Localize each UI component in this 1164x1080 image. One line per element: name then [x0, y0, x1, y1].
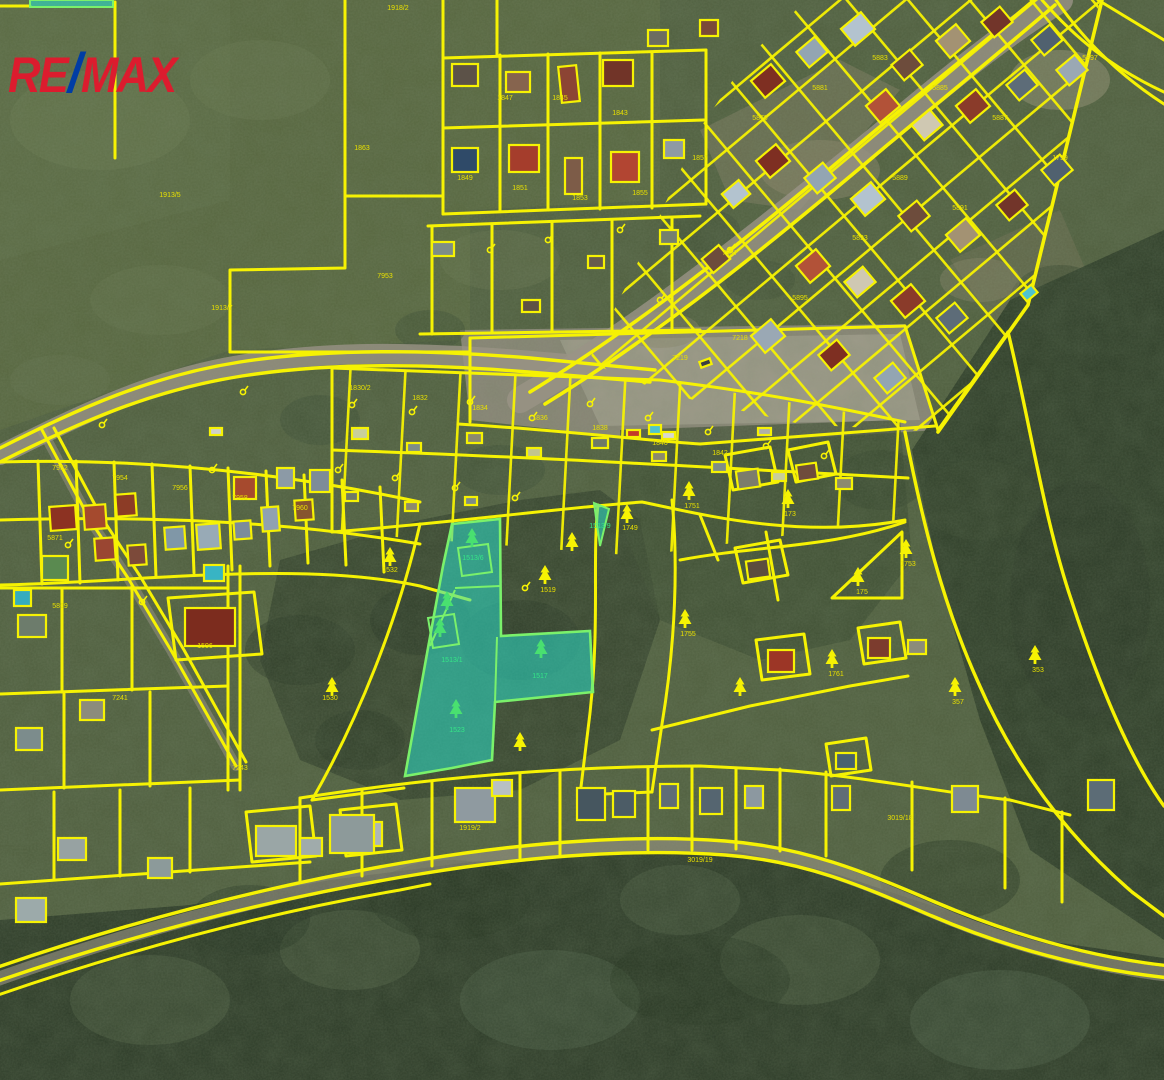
parcel-number-label: 1513/9: [589, 523, 611, 530]
building-footprint: [712, 462, 727, 472]
building-footprint: [603, 60, 633, 86]
building-footprint: [506, 72, 530, 92]
parcel-number-label: 1840: [652, 440, 668, 447]
parcel-number-label: 7953: [377, 273, 393, 280]
parcel-number-label: 5885: [932, 85, 948, 92]
parcel-number-label: 1513/6: [462, 555, 484, 562]
parcel-number-label: 1523: [449, 727, 465, 734]
building-footprint: [465, 497, 477, 505]
building-footprint: [627, 430, 640, 437]
building-footprint: [908, 640, 926, 654]
parcel-number-label: 1755: [680, 631, 696, 638]
parcel-number-label: 7243: [232, 765, 248, 772]
parcel-number-label: 1838: [592, 425, 608, 432]
parcel-number-label: 7241: [112, 695, 128, 702]
building-footprint: [836, 753, 856, 769]
building-footprint: [196, 523, 221, 550]
building-footprint: [455, 788, 495, 822]
parcel-number-label: 1761: [828, 671, 844, 678]
building-footprint: [42, 556, 68, 580]
parcel-number-label: 1855: [632, 190, 648, 197]
building-footprint: [148, 858, 172, 878]
building-footprint: [736, 469, 760, 490]
building-footprint: [868, 638, 890, 658]
parcel-number-label: 353: [1032, 667, 1044, 674]
highlighted-parcel-edge-strip: [30, 0, 113, 7]
parcel-number-label: 7958: [232, 495, 248, 502]
parcel-number-label: 7957: [722, 250, 738, 257]
building-footprint: [467, 433, 482, 443]
building-footprint: [185, 608, 235, 646]
parcel-number-label: 5895: [792, 295, 808, 302]
building-footprint: [509, 145, 539, 172]
building-footprint: [588, 256, 604, 268]
building-footprint: [210, 428, 222, 435]
building-footprint: [660, 784, 678, 808]
parcel-number-label: 1847: [497, 95, 513, 102]
parcel-number-label: 5889: [892, 175, 908, 182]
parcel-number-label: 173: [784, 511, 796, 518]
building-footprint: [405, 502, 418, 511]
building-footprint: [330, 815, 374, 853]
parcel-number-label: 1918/2: [387, 5, 409, 12]
building-footprint: [648, 30, 668, 46]
parcel-number-label: 1842: [712, 450, 728, 457]
parcel-number-label: 3019/19: [687, 857, 712, 864]
building-footprint: [14, 590, 31, 606]
parcel-number-label: 1834: [472, 405, 488, 412]
building-footprint: [664, 140, 684, 158]
building-footprint: [952, 786, 978, 812]
parcel-number-label: 7954: [112, 475, 128, 482]
building-footprint: [58, 838, 86, 860]
parcel-number-label: 1830/2: [349, 385, 371, 392]
building-footprint: [527, 448, 541, 457]
building-footprint: [660, 230, 678, 244]
building-footprint: [407, 443, 421, 452]
parcel-number-label: 7952: [52, 465, 68, 472]
parcel-number-label: 1851: [512, 185, 528, 192]
parcel-number-label: 5869: [52, 603, 68, 610]
building-footprint: [83, 504, 107, 529]
parcel-number-label: 5893: [852, 235, 868, 242]
building-footprint: [700, 788, 722, 814]
parcel-number-label: 1913/7: [211, 305, 233, 312]
building-footprint: [18, 615, 46, 637]
parcel-number-label: 1843: [612, 110, 628, 117]
remax-logo: RE/MAX: [8, 40, 176, 105]
parcel-number-label: 1857: [692, 155, 708, 162]
building-footprint: [310, 470, 330, 492]
building-footprint: [345, 492, 358, 501]
parcel-number-label: 5881: [812, 85, 828, 92]
building-footprint: [796, 463, 818, 482]
building-footprint: [164, 526, 185, 549]
building-footprint: [772, 472, 786, 481]
building-footprint: [352, 428, 368, 439]
parcel-number-label: 5897: [1082, 55, 1098, 62]
building-footprint: [277, 468, 294, 488]
building-footprint: [492, 780, 512, 796]
parcel-number-label: 1799: [1052, 155, 1068, 162]
parcel-number-label: 7219: [672, 355, 688, 362]
building-footprint: [577, 788, 605, 820]
parcel-number-label: 1519: [540, 587, 556, 594]
parcel-number-label: 5883: [872, 55, 888, 62]
parcel-number-label: 1853: [572, 195, 588, 202]
parcel-number-label: 175: [856, 589, 868, 596]
parcel-number-label: 1913/5: [159, 192, 181, 199]
building-footprint: [204, 565, 224, 581]
building-footprint: [16, 728, 42, 750]
building-footprint: [49, 505, 77, 531]
parcel-number-label: 7218: [732, 335, 748, 342]
building-footprint: [758, 428, 771, 435]
building-footprint: [592, 438, 608, 448]
building-footprint: [565, 158, 582, 194]
building-footprint: [662, 432, 675, 439]
parcel-number-label: 1513/1: [441, 657, 463, 664]
building-footprint: [1088, 780, 1114, 810]
building-footprint: [745, 786, 763, 808]
parcel-number-label: 5891: [952, 205, 968, 212]
building-footprint: [611, 152, 639, 182]
building-footprint: [261, 506, 280, 531]
building-footprint: [127, 544, 146, 565]
parcel-number-label: 1849: [457, 175, 473, 182]
parcel-number-label: 5887: [992, 115, 1008, 122]
parcel-number-label: 357: [952, 699, 964, 706]
parcel-number-label: 3019/18: [887, 815, 912, 822]
parcel-number-label: 1919/2: [459, 825, 481, 832]
parcel-number-label: 7956: [172, 485, 188, 492]
parcel-number-label: 7960: [292, 505, 308, 512]
parcel-number-label: 1836: [532, 415, 548, 422]
building-footprint: [94, 537, 115, 560]
aerial-cadastral-map: 1913/51918/218631913/7795379571845184318…: [0, 0, 1164, 1080]
parcel-number-label: 1845: [552, 95, 568, 102]
building-footprint: [652, 452, 666, 461]
building-footprint: [300, 838, 322, 856]
parcel-number-label: 1596: [197, 643, 213, 650]
parcel-number-label: 5871: [47, 535, 63, 542]
building-footprint: [115, 493, 136, 516]
building-footprint: [432, 242, 454, 256]
building-footprint: [768, 650, 794, 672]
parcel-number-label: 1517: [532, 673, 548, 680]
remax-logo-max: MAX: [81, 47, 176, 103]
parcel-number-label: 1863: [354, 145, 370, 152]
building-footprint: [522, 300, 540, 312]
building-footprint: [80, 700, 104, 720]
parcel-number-label: 1530: [322, 695, 338, 702]
building-footprint: [256, 826, 296, 856]
parcel-number-label: 5879: [752, 115, 768, 122]
remax-logo-slash: /: [67, 41, 81, 104]
cadastral-map-view: 1913/51918/218631913/7795379571845184318…: [0, 0, 1164, 1080]
building-footprint: [832, 786, 850, 810]
building-footprint: [746, 559, 770, 580]
building-footprint: [16, 898, 46, 922]
remax-logo-re: RE: [8, 47, 67, 103]
parcel-number-label: 1753: [900, 561, 916, 568]
building-footprint: [233, 520, 251, 539]
parcel-number-label: 1749: [622, 525, 638, 532]
parcel-number-label: 1751: [684, 503, 700, 510]
parcel-number-label: 1532: [382, 567, 398, 574]
building-footprint: [452, 64, 478, 86]
building-footprint: [836, 478, 852, 489]
building-footprint: [649, 425, 661, 434]
building-footprint: [700, 20, 718, 36]
building-footprint: [613, 791, 635, 817]
parcel-number-label: 1832: [412, 395, 428, 402]
building-footprint: [452, 148, 478, 172]
